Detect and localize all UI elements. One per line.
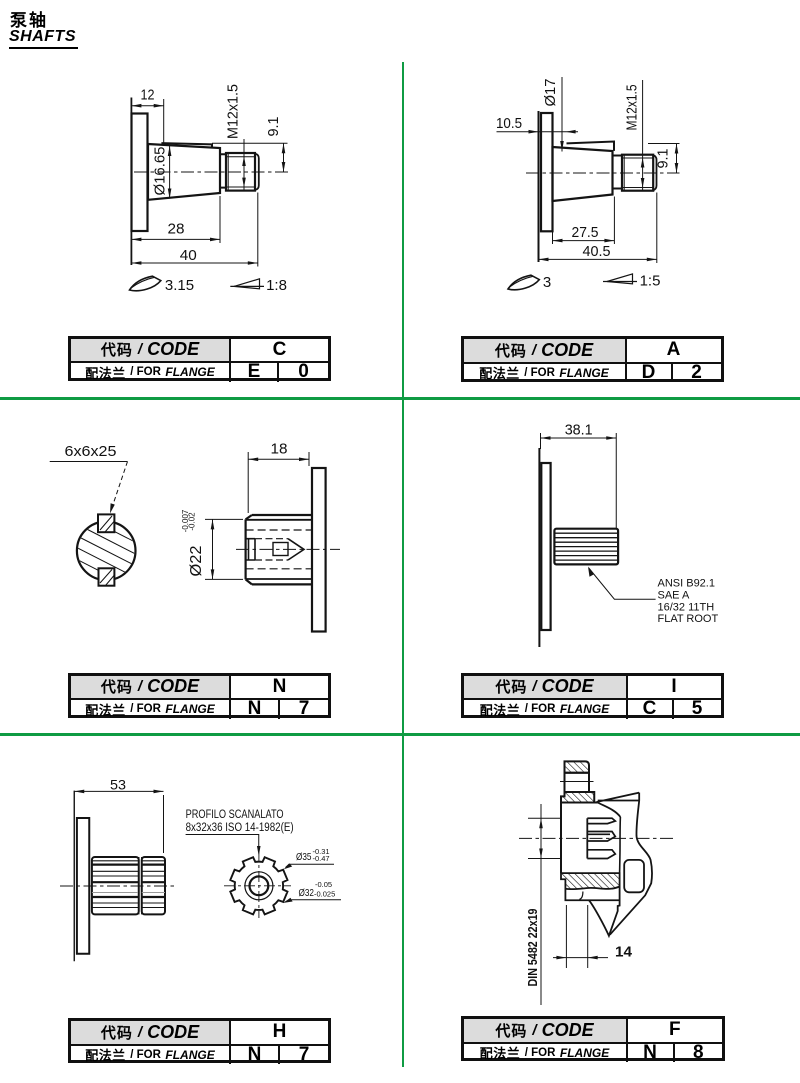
svg-text:40: 40	[180, 247, 197, 264]
svg-text:Ø17: Ø17	[542, 79, 559, 107]
svg-text:28: 28	[168, 221, 185, 238]
svg-text:M12x1.5: M12x1.5	[624, 85, 641, 131]
svg-text:PROFILO SCANALATO: PROFILO SCANALATO	[186, 809, 284, 821]
svg-text:38.1: 38.1	[565, 422, 593, 439]
svg-text:3.15: 3.15	[165, 277, 194, 294]
svg-text:1:5: 1:5	[640, 273, 661, 290]
svg-text:M12x1.5: M12x1.5	[225, 84, 242, 139]
svg-text:18: 18	[271, 441, 288, 458]
svg-text:10.5: 10.5	[496, 115, 522, 132]
svg-text:DIN 5482 22x19: DIN 5482 22x19	[526, 908, 540, 986]
svg-text:Ø16.65: Ø16.65	[152, 147, 169, 196]
svg-text:12: 12	[141, 87, 155, 104]
svg-text:Ø22: Ø22	[188, 545, 205, 576]
svg-text:Ø32: Ø32	[299, 887, 315, 899]
svg-text:53: 53	[110, 777, 126, 793]
svg-text:6x6x25: 6x6x25	[65, 443, 117, 460]
svg-text:40.5: 40.5	[583, 243, 611, 260]
svg-text:9.1: 9.1	[655, 149, 672, 169]
svg-text:-0.05: -0.05	[315, 880, 332, 889]
svg-text:9.1: 9.1	[265, 117, 282, 137]
svg-text:Ø35: Ø35	[296, 851, 312, 863]
svg-text:FLAT ROOT: FLAT ROOT	[658, 613, 719, 625]
svg-text:-0.47: -0.47	[313, 854, 330, 863]
svg-text:8x32x36 ISO 14-1982(E): 8x32x36 ISO 14-1982(E)	[186, 822, 294, 834]
svg-text:27.5: 27.5	[572, 224, 599, 241]
svg-text:-0.025: -0.025	[314, 890, 335, 899]
svg-text:ANSI B92.1: ANSI B92.1	[658, 578, 715, 590]
svg-text:14: 14	[615, 945, 632, 961]
svg-text:-0.02: -0.02	[188, 512, 197, 531]
svg-text:16/32 11TH: 16/32 11TH	[658, 601, 715, 613]
svg-text:3: 3	[543, 274, 551, 291]
svg-text:SAE A: SAE A	[658, 589, 690, 601]
svg-text:1:8: 1:8	[266, 277, 287, 294]
